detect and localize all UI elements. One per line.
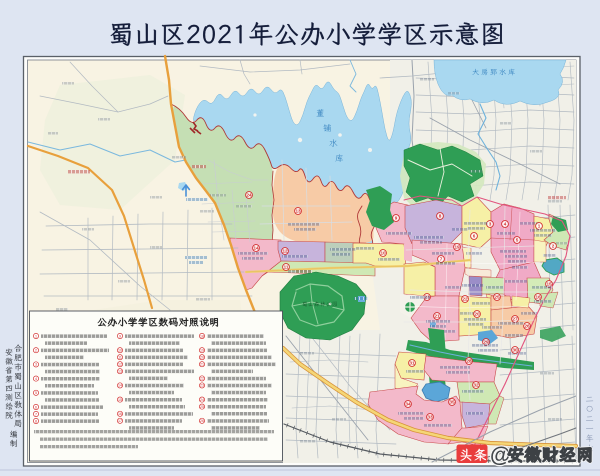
svg-text:9: 9 — [119, 334, 121, 338]
svg-text:3: 3 — [35, 363, 37, 367]
svg-text:22: 22 — [462, 297, 468, 302]
svg-text:31: 31 — [409, 361, 415, 366]
svg-text:34: 34 — [405, 402, 411, 407]
svg-text:8: 8 — [35, 419, 37, 423]
svg-text:32: 32 — [473, 383, 479, 388]
svg-text:16: 16 — [535, 295, 541, 300]
svg-text:25: 25 — [494, 295, 500, 300]
svg-text:6: 6 — [473, 234, 476, 239]
svg-text:33: 33 — [427, 415, 433, 420]
svg-text:15: 15 — [118, 398, 122, 402]
svg-text:24: 24 — [200, 398, 204, 402]
svg-text:20: 20 — [474, 312, 480, 317]
svg-text:24: 24 — [246, 193, 252, 198]
svg-text:13: 13 — [295, 209, 301, 214]
svg-text:22: 22 — [200, 377, 204, 381]
svg-text:26: 26 — [200, 419, 204, 423]
svg-text:1: 1 — [538, 224, 541, 229]
svg-text:14: 14 — [118, 384, 122, 388]
svg-text:13: 13 — [118, 370, 122, 374]
svg-text:29: 29 — [483, 340, 489, 345]
svg-text:21: 21 — [434, 314, 440, 319]
svg-text:18: 18 — [200, 334, 204, 338]
svg-text:21: 21 — [200, 363, 204, 367]
svg-text:8: 8 — [439, 214, 442, 219]
svg-text:16: 16 — [118, 412, 122, 416]
svg-text:3: 3 — [489, 222, 492, 227]
svg-text:10: 10 — [118, 349, 122, 353]
svg-text:23: 23 — [200, 384, 204, 388]
svg-text:25: 25 — [200, 405, 204, 409]
svg-text:12: 12 — [118, 363, 122, 367]
svg-text:11: 11 — [118, 356, 122, 360]
svg-text:7: 7 — [440, 257, 443, 262]
svg-text:27: 27 — [512, 317, 518, 322]
svg-text:2: 2 — [35, 349, 37, 353]
svg-text:5: 5 — [516, 238, 519, 243]
svg-text:26: 26 — [524, 324, 530, 329]
svg-text:11: 11 — [284, 265, 289, 270]
svg-text:35: 35 — [449, 400, 455, 405]
svg-text:14: 14 — [253, 246, 259, 251]
svg-text:10: 10 — [380, 251, 386, 256]
svg-text:2: 2 — [552, 244, 555, 249]
svg-text:9: 9 — [395, 216, 398, 221]
svg-text:12: 12 — [282, 249, 288, 254]
svg-text:4: 4 — [504, 222, 507, 227]
svg-text:6: 6 — [35, 405, 37, 409]
svg-text:4: 4 — [35, 377, 37, 381]
svg-text:5: 5 — [35, 391, 37, 395]
svg-text:30: 30 — [512, 348, 518, 353]
svg-text:28: 28 — [466, 359, 472, 364]
svg-text:20: 20 — [200, 356, 204, 360]
svg-text:1: 1 — [35, 334, 37, 338]
svg-text:17: 17 — [118, 419, 122, 423]
svg-text:19: 19 — [200, 349, 204, 353]
svg-text:15: 15 — [546, 282, 552, 287]
svg-text:7: 7 — [35, 412, 37, 416]
svg-text:19: 19 — [454, 245, 460, 250]
